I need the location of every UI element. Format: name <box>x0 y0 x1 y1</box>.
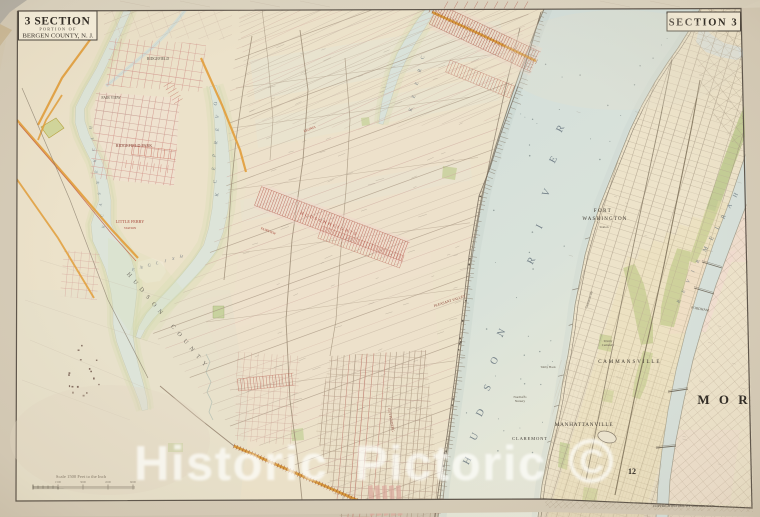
svg-text:Historic: Historic <box>134 437 328 491</box>
svg-text:Pictoric: Pictoric <box>355 437 547 491</box>
svg-text:C: C <box>579 443 604 481</box>
